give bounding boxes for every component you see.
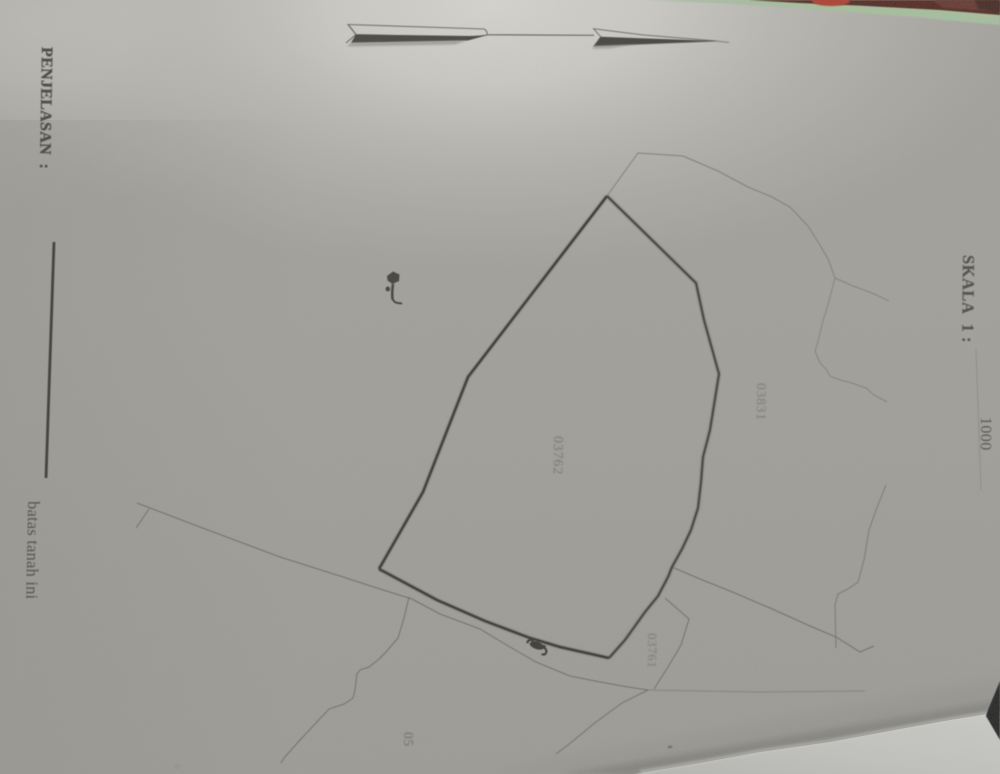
svg-text:SKALA 1 :: SKALA 1 : bbox=[958, 255, 978, 343]
svg-text:03831: 03831 bbox=[754, 383, 769, 421]
svg-text:0: 0 bbox=[172, 764, 182, 769]
svg-text:03762: 03762 bbox=[550, 436, 565, 475]
svg-text:05: 05 bbox=[401, 732, 416, 747]
svg-text:1000: 1000 bbox=[977, 417, 994, 451]
svg-text:03761: 03761 bbox=[645, 633, 660, 669]
svg-text:PENJELASAN :: PENJELASAN : bbox=[36, 47, 55, 169]
svg-text:batas tanah ini: batas tanah ini bbox=[22, 501, 43, 600]
